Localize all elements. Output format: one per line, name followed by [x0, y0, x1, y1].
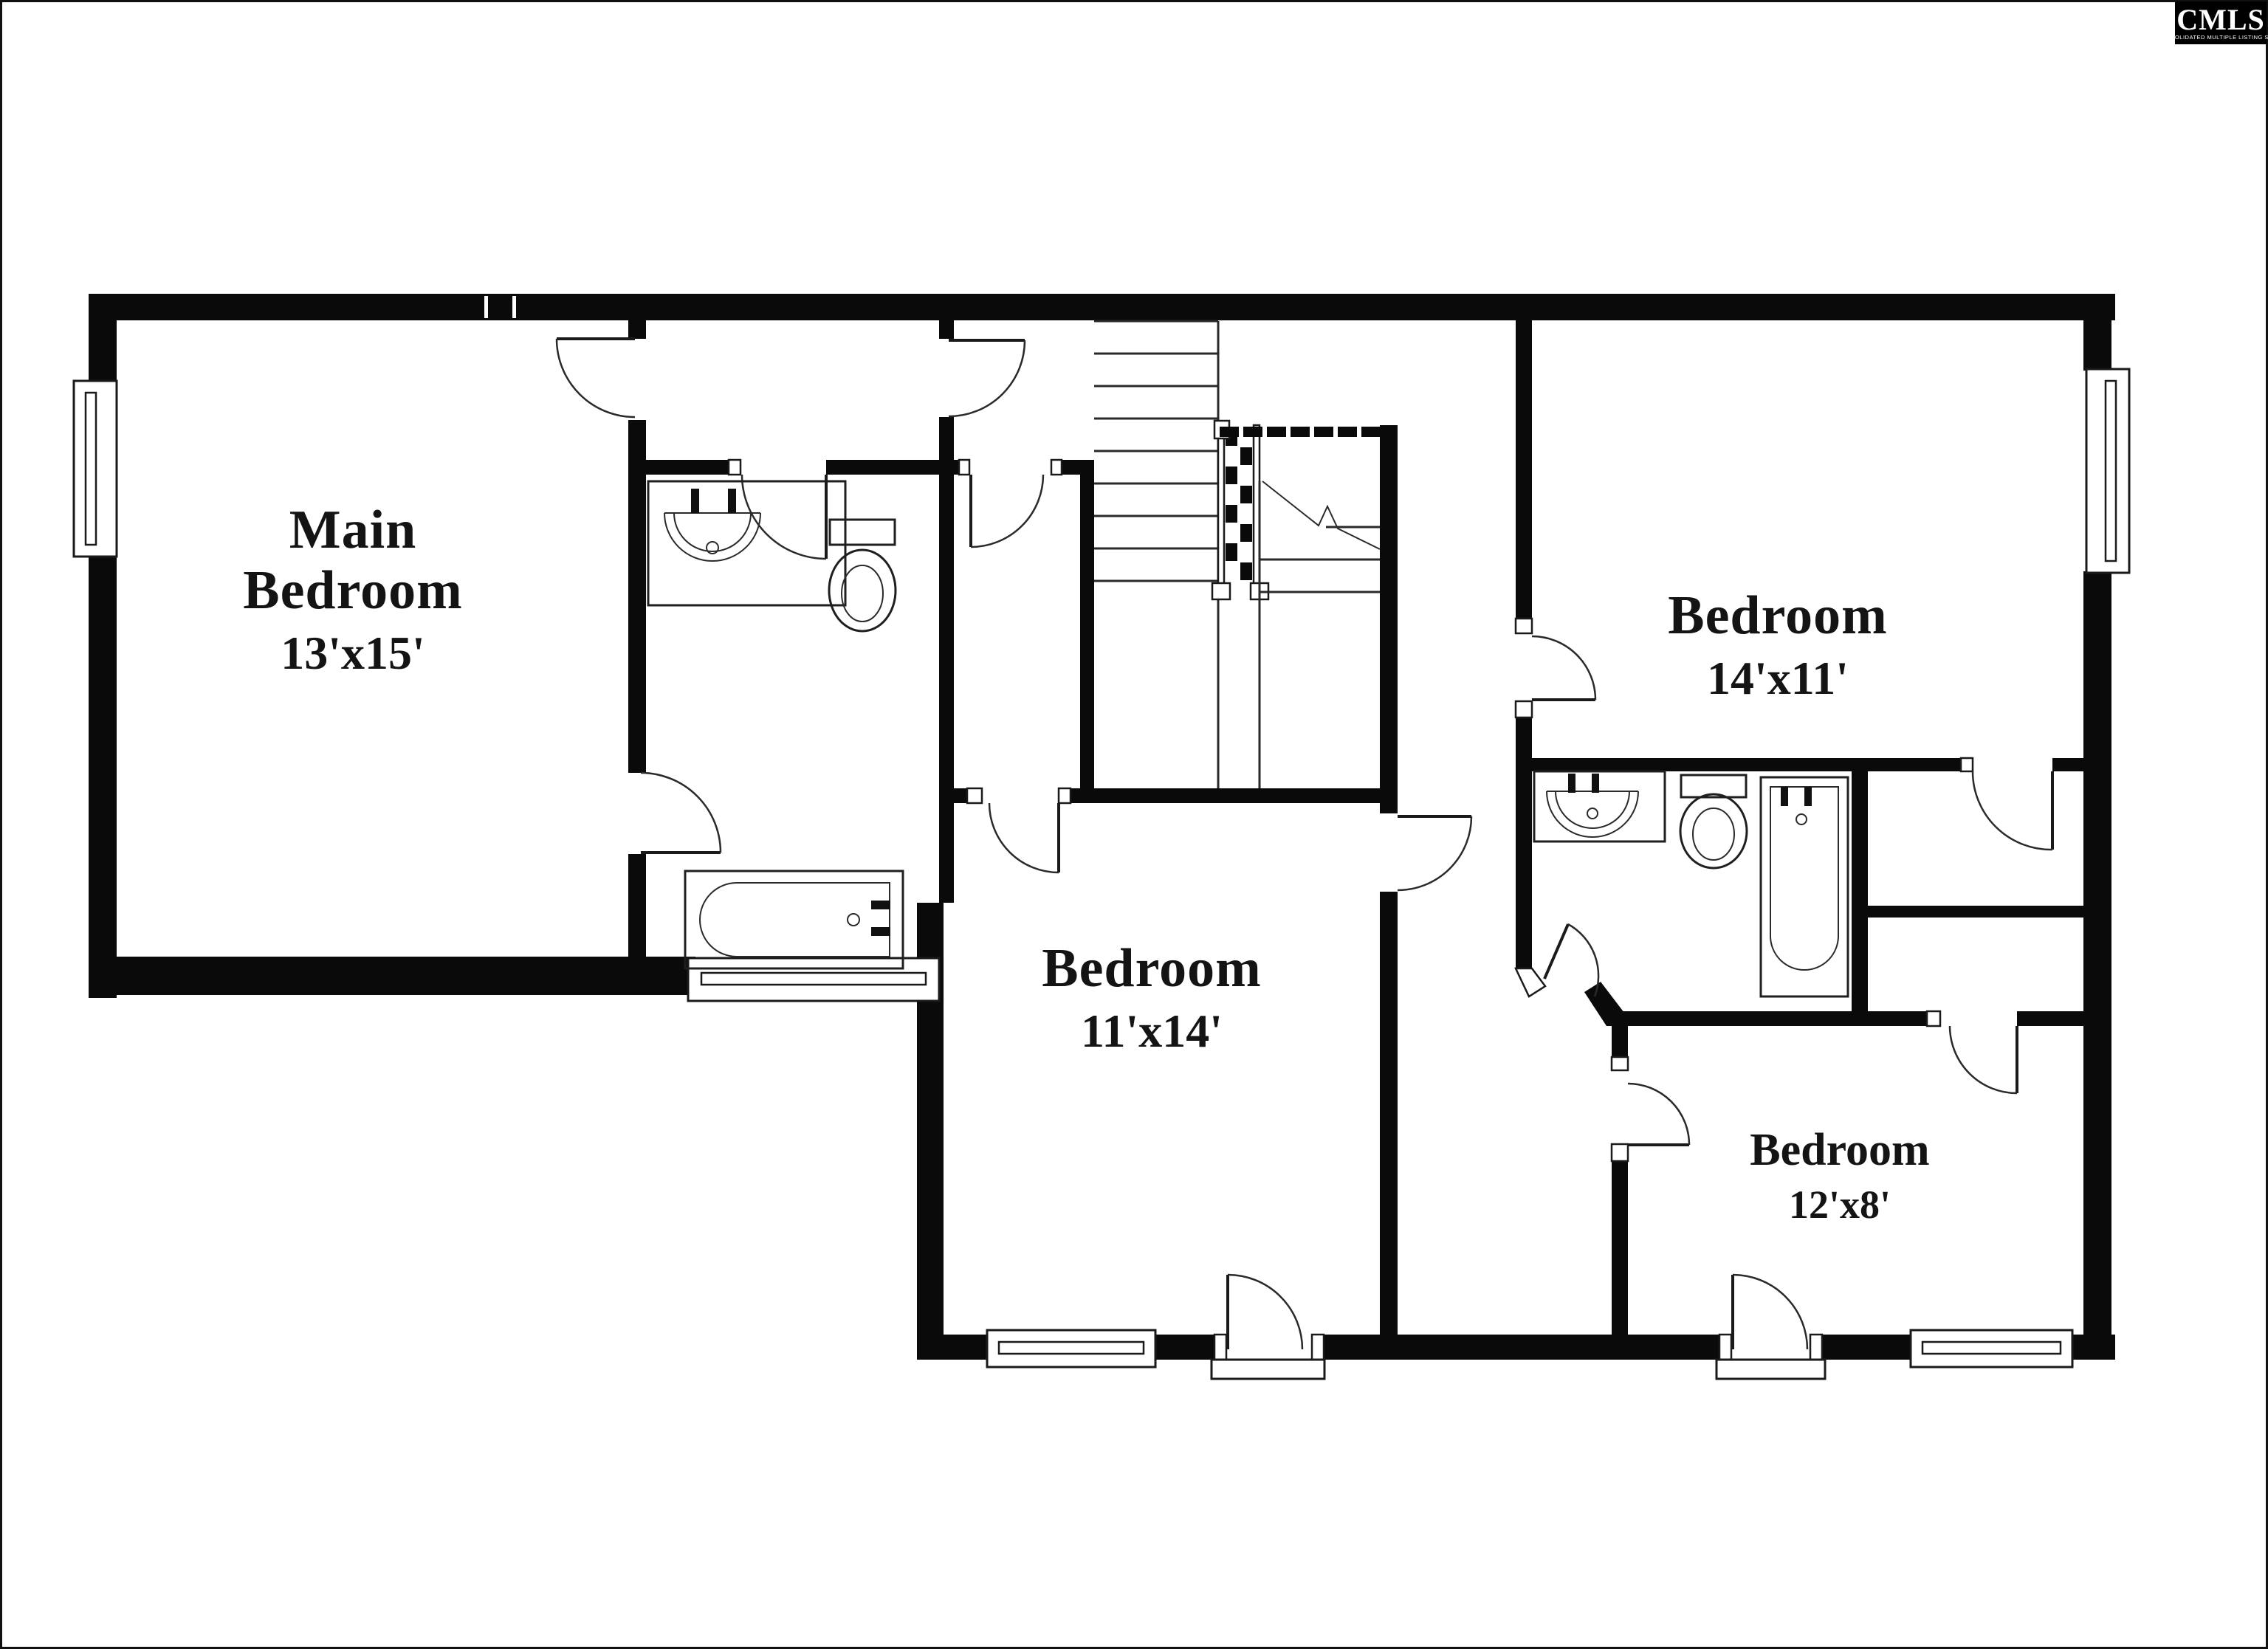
bathtub-icon	[1761, 777, 1848, 996]
door-closet-to-hall	[949, 340, 1025, 416]
newel-post	[1212, 583, 1230, 599]
cmls-logo: CMLS CONSOLIDATED MULTIPLE LISTING SERVI…	[2157, 1, 2268, 44]
label-bedroom-southeast: Bedroom 12'x8'	[1750, 1125, 1929, 1227]
stair-treads-east	[1260, 481, 1380, 788]
stair-opening-dashed-line	[1220, 427, 1381, 437]
threshold	[1212, 1360, 1324, 1379]
floorplan-drawing: Main Bedroom 13'x15' Bedroom 14'x11' Bed…	[0, 0, 2268, 1649]
staircase	[1094, 321, 1381, 788]
floorplan-page: Main Bedroom 13'x15' Bedroom 14'x11' Bed…	[0, 0, 2268, 1649]
room-name: Main	[289, 500, 417, 560]
page-border	[1, 1, 2267, 1648]
door-bedroom-northeast-closet	[1973, 771, 2052, 850]
logo-text: CMLS	[2176, 3, 2265, 36]
window-main-bedroom-west	[74, 381, 117, 557]
right-bathroom	[1534, 771, 1848, 996]
left-bathroom	[648, 481, 903, 968]
door-bedroom-southeast-exterior	[1717, 1275, 1825, 1379]
room-dims: 14'x11'	[1707, 652, 1849, 704]
window-bedroom-south	[987, 1330, 1155, 1367]
room-dims: 13'x15'	[281, 627, 425, 679]
angled-jamb	[1516, 968, 1545, 996]
stair-break-line	[1262, 481, 1380, 549]
room-dims: 11'x14'	[1081, 1005, 1223, 1057]
door-hall-to-bedroom-southeast	[1628, 1084, 1689, 1145]
room-dims: 12'x8'	[1789, 1182, 1891, 1227]
room-name: Bedroom	[1042, 938, 1262, 999]
door-bedroom-south-hall	[1398, 816, 1471, 890]
logo-tagline: CONSOLIDATED MULTIPLE LISTING SERVICE	[2157, 34, 2268, 41]
toilet-icon	[829, 520, 896, 631]
door-hall-to-corridor	[971, 475, 1043, 547]
door-bedroom-northeast	[1532, 636, 1595, 700]
threshold	[1717, 1360, 1825, 1379]
label-main-bedroom: Main Bedroom 13'x15'	[243, 500, 463, 679]
room-name: Bedroom	[243, 560, 463, 621]
door-closet-to-sink-area	[742, 475, 826, 559]
label-bedroom-south: Bedroom 11'x14'	[1042, 938, 1262, 1057]
door-main-bedroom-to-bathroom	[641, 773, 721, 853]
window-bedroom-southeast	[1911, 1330, 2072, 1367]
bathtub-icon	[685, 871, 903, 968]
door-corridor-to-bedroom-south	[989, 803, 1059, 872]
door-right-bathroom-angled	[1544, 924, 1598, 996]
window-left-bathroom-south	[688, 958, 939, 1001]
window-bedroom-northeast-east	[2086, 369, 2129, 573]
toilet-icon	[1680, 775, 1747, 868]
door-bedroom-south-exterior	[1212, 1275, 1324, 1379]
label-bedroom-northeast: Bedroom 14'x11'	[1668, 585, 1888, 704]
stair-treads-west	[1094, 321, 1218, 788]
room-name: Bedroom	[1750, 1125, 1929, 1175]
door-main-bedroom-closet	[557, 339, 635, 417]
sink-icon	[1534, 771, 1665, 841]
room-name: Bedroom	[1668, 585, 1888, 646]
door-bedroom-southeast-closet	[1950, 1026, 2017, 1093]
